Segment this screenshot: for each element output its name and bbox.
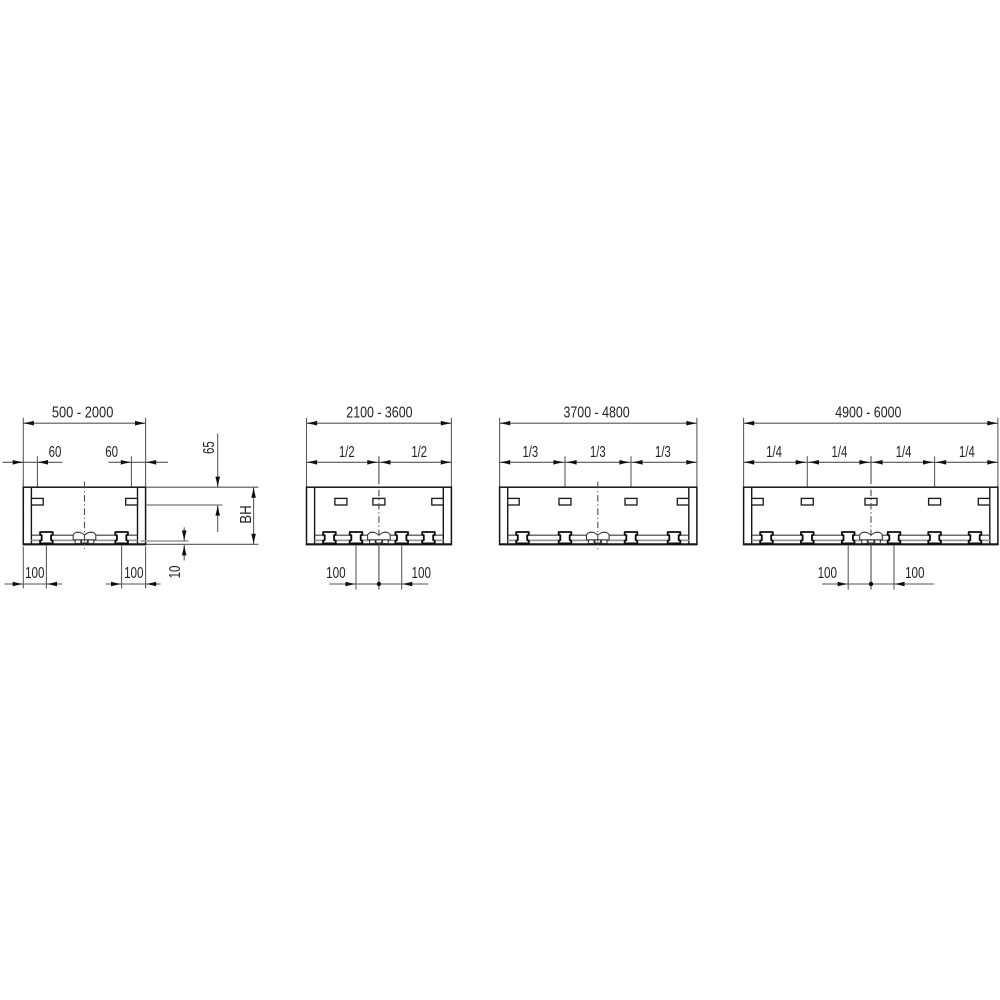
svg-text:1/4: 1/4 [766,443,782,460]
svg-text:100: 100 [326,564,346,581]
svg-text:1/4: 1/4 [896,443,912,460]
svg-text:100: 100 [905,564,925,581]
svg-text:BH: BH [238,505,255,524]
svg-text:100: 100 [818,564,838,581]
svg-text:1/3: 1/3 [522,443,538,460]
svg-text:100: 100 [124,564,144,581]
svg-text:1/4: 1/4 [832,443,848,460]
svg-text:1/2: 1/2 [339,443,355,460]
svg-text:4900 - 6000: 4900 - 6000 [835,403,901,421]
svg-text:60: 60 [105,443,118,460]
svg-text:100: 100 [25,564,45,581]
svg-text:65: 65 [200,441,217,454]
svg-text:1/3: 1/3 [590,443,606,460]
svg-text:1/4: 1/4 [959,443,975,460]
svg-text:60: 60 [49,443,62,460]
svg-text:10: 10 [167,565,184,578]
svg-text:3700 - 4800: 3700 - 4800 [564,403,630,421]
svg-text:1/3: 1/3 [655,443,671,460]
svg-text:100: 100 [411,564,431,581]
svg-text:500 - 2000: 500 - 2000 [52,405,114,422]
svg-text:2100 - 3600: 2100 - 3600 [346,403,412,421]
svg-text:1/2: 1/2 [411,443,427,460]
